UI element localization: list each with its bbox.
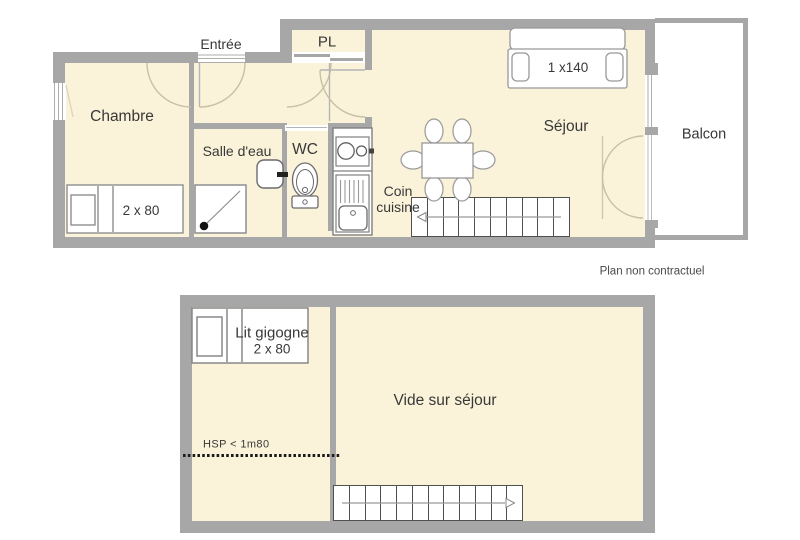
wall-right-stub2 xyxy=(645,127,658,135)
partition-chambre xyxy=(189,63,194,237)
wc-threshold-line xyxy=(286,127,327,128)
balcony-border-right xyxy=(743,18,748,240)
coin-cuisine-line2: cuisine xyxy=(376,199,420,215)
wall-left xyxy=(53,52,65,248)
room-label-vide-sur-sejour: Vide sur séjour xyxy=(393,392,496,410)
wc-door-threshold xyxy=(285,125,328,131)
window-sejour xyxy=(645,75,655,127)
entrance-door-threshold xyxy=(198,52,245,63)
bed2-label-line1: Lit gigogne xyxy=(235,325,308,342)
sofa-dimension-label: 1 x140 xyxy=(548,60,589,76)
wall-bottom xyxy=(53,237,655,248)
wall-right-stub1 xyxy=(645,63,658,75)
room-label-coin-cuisine: Coin cuisine xyxy=(376,183,420,215)
pl-sliding-panel-2 xyxy=(330,58,363,61)
room-label-sejour: Séjour xyxy=(544,118,589,136)
room-label-salle-deau: Salle d'eau xyxy=(203,143,272,159)
coin-cuisine-line1: Coin xyxy=(376,183,420,199)
level2-wall-left xyxy=(180,295,192,533)
ceiling-height-note: HSP < 1m80 xyxy=(203,439,269,452)
wall-right-stub3 xyxy=(645,220,658,228)
room-label-pl: PL xyxy=(318,33,336,50)
stairs-level2 xyxy=(333,485,523,521)
wall-right-lower xyxy=(645,228,655,248)
disclaimer-note: Plan non contractuel xyxy=(600,265,705,278)
partition-wc-right xyxy=(328,123,333,231)
balcony-border-top xyxy=(655,18,748,23)
partition-salle-deau-top xyxy=(194,123,287,129)
stairs-level1 xyxy=(411,197,570,237)
window-chambre xyxy=(51,83,66,120)
floor-plan-canvas: Entrée PL Chambre Salle d'eau WC Coin cu… xyxy=(0,0,800,540)
room-label-entree: Entrée xyxy=(200,36,241,52)
bed2-label: Lit gigogne 2 x 80 xyxy=(235,325,308,358)
wall-top-right xyxy=(280,19,655,30)
level2-wall-top xyxy=(180,295,655,307)
partition-salle-deau-wc xyxy=(282,129,287,237)
room-label-wc: WC xyxy=(292,141,318,159)
wall-top-left xyxy=(53,52,287,63)
partition-hall-sejour-upper xyxy=(365,30,372,70)
partition-hall-sejour-lower xyxy=(365,117,372,128)
balcony-door-threshold xyxy=(645,135,655,220)
room-label-chambre: Chambre xyxy=(90,108,154,126)
balcony-border-bottom xyxy=(655,235,748,240)
pl-sliding-panel-1 xyxy=(294,54,330,57)
wall-right-upper xyxy=(645,19,655,63)
bed2-label-line2: 2 x 80 xyxy=(235,342,308,358)
level2-wall-right xyxy=(643,295,655,533)
room-label-balcon: Balcon xyxy=(682,127,726,144)
bed1-dimension-label: 2 x 80 xyxy=(123,203,160,219)
level2-wall-bottom xyxy=(180,521,655,533)
